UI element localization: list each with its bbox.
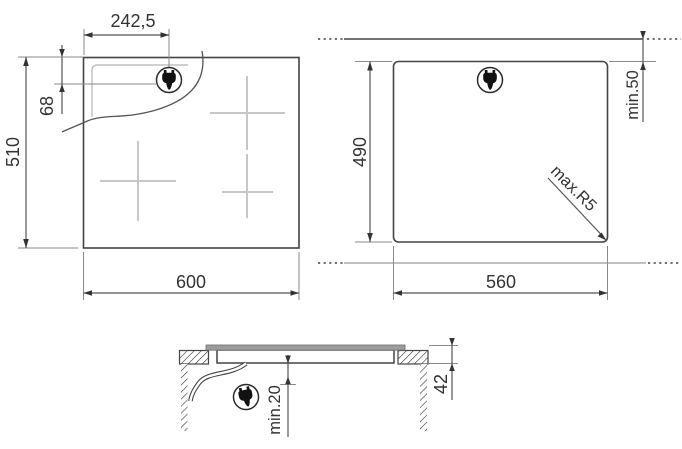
dim-built-in-depth: 42 (429, 338, 458, 400)
side-section-view: min.20 42 (180, 338, 459, 437)
dim-label-cutout-width: 560 (486, 272, 516, 292)
dim-label-plug-offset-x: 242,5 (110, 11, 155, 31)
power-plug-icon (231, 382, 261, 412)
dim-bottom-clearance: min.20 (266, 355, 296, 437)
worktop-section-left (180, 351, 209, 365)
dim-cutout-depth: 490 (350, 62, 392, 243)
dim-label-hob-width: 600 (176, 272, 206, 292)
dim-label-plug-offset-y: 68 (37, 96, 57, 116)
diagram-canvas: 242,5 68 510 600 (0, 0, 682, 449)
dim-label-cutout-depth: 490 (350, 137, 370, 167)
dim-label-hob-depth: 510 (3, 137, 23, 167)
hob-body (217, 350, 394, 363)
cabinet-panel-right (420, 364, 427, 431)
installation-diagram: 242,5 68 510 600 (0, 0, 682, 449)
dim-hob-depth: 510 (3, 57, 83, 248)
dim-hob-width: 600 (84, 252, 300, 300)
worktop-cutout-view: 490 min.50 max.R5 560 (318, 31, 681, 300)
hob-top-view: 242,5 68 510 600 (3, 11, 299, 300)
power-plug-icon (157, 68, 182, 93)
hob-outline (84, 58, 300, 249)
dim-wall-clearance: min.50 (609, 31, 656, 122)
dim-label-built-in-depth: 42 (431, 374, 451, 394)
worktop-section-right (398, 351, 428, 365)
glass-panel (206, 345, 405, 350)
cabinet-panel-left (181, 364, 188, 431)
cutout-outline (394, 62, 608, 243)
dim-label-wall-clearance: min.50 (624, 70, 642, 120)
dim-label-bottom-clearance: min.20 (266, 385, 284, 435)
power-plug-icon (478, 68, 503, 93)
dim-cutout-width: 560 (394, 246, 608, 300)
